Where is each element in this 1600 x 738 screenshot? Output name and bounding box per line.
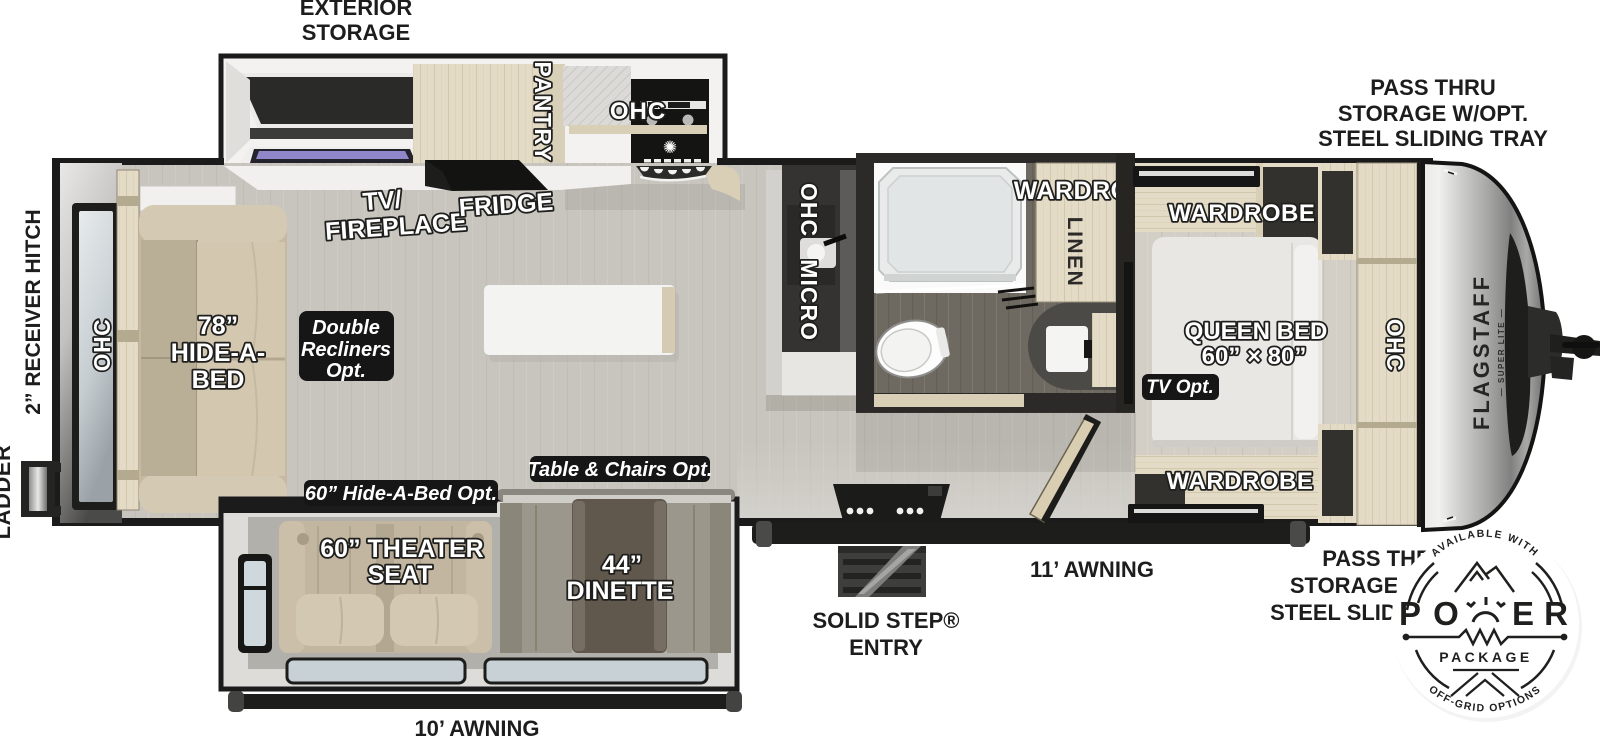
svg-text:LADDER: LADDER (0, 445, 15, 540)
svg-text:FLAGSTAFF: FLAGSTAFF (1469, 274, 1494, 430)
svg-text:Table & Chairs Opt.: Table & Chairs Opt. (528, 459, 713, 481)
svg-text:QUEEN BED: QUEEN BED (1185, 318, 1328, 345)
svg-text:O: O (1433, 595, 1459, 632)
svg-text:Recliners: Recliners (301, 339, 391, 361)
svg-text:2” RECEIVER HITCH: 2” RECEIVER HITCH (22, 209, 45, 414)
svg-text:STORAGE: STORAGE (302, 20, 410, 45)
svg-text:11’ AWNING: 11’ AWNING (1030, 557, 1154, 582)
svg-text:OHC: OHC (89, 319, 115, 372)
svg-text:Double: Double (312, 317, 380, 339)
svg-text:R: R (1544, 595, 1568, 632)
svg-text:E: E (1512, 595, 1534, 632)
svg-text:ENTRY: ENTRY (849, 635, 923, 660)
svg-text:P: P (1399, 595, 1421, 632)
svg-text:STORAGE W/OPT.: STORAGE W/OPT. (1338, 101, 1528, 126)
svg-text:WARDROBE: WARDROBE (1167, 468, 1314, 495)
svg-text:TV/: TV/ (362, 186, 403, 217)
svg-text:60” × 80”: 60” × 80” (1202, 343, 1307, 370)
svg-text:BED: BED (192, 366, 245, 394)
svg-text:Opt.: Opt. (326, 360, 366, 382)
svg-text:OHC MICRO: OHC MICRO (796, 183, 822, 341)
svg-text:WARDROBE: WARDROBE (1169, 200, 1316, 227)
svg-text:78”: 78” (198, 312, 238, 340)
svg-text:10’ AWNING: 10’ AWNING (414, 716, 539, 738)
svg-text:LINEN: LINEN (1063, 217, 1086, 288)
svg-text:OHC: OHC (610, 98, 666, 125)
svg-text:HIDE-A-: HIDE-A- (171, 339, 265, 367)
svg-text:60” Hide-A-Bed Opt.: 60” Hide-A-Bed Opt. (305, 483, 497, 505)
svg-text:TV Opt.: TV Opt. (1146, 377, 1214, 398)
svg-text:PACKAGE: PACKAGE (1439, 649, 1532, 665)
svg-text:DINETTE: DINETTE (567, 577, 674, 605)
svg-text:STEEL SLIDING TRAY: STEEL SLIDING TRAY (1318, 126, 1548, 151)
svg-text:60” THEATER: 60” THEATER (320, 535, 483, 563)
svg-text:— SUPER LITE —: — SUPER LITE — (1497, 308, 1506, 397)
svg-text:SOLID STEP®: SOLID STEP® (812, 608, 959, 633)
svg-text:SEAT: SEAT (368, 561, 433, 589)
svg-text:EXTERIOR: EXTERIOR (300, 0, 413, 20)
svg-text:PASS THRU: PASS THRU (1370, 75, 1496, 100)
svg-text:OHC: OHC (1382, 319, 1408, 372)
svg-text:PANTRY: PANTRY (530, 62, 556, 163)
svg-text:44”: 44” (602, 551, 642, 579)
svg-text:✺: ✺ (663, 138, 677, 157)
